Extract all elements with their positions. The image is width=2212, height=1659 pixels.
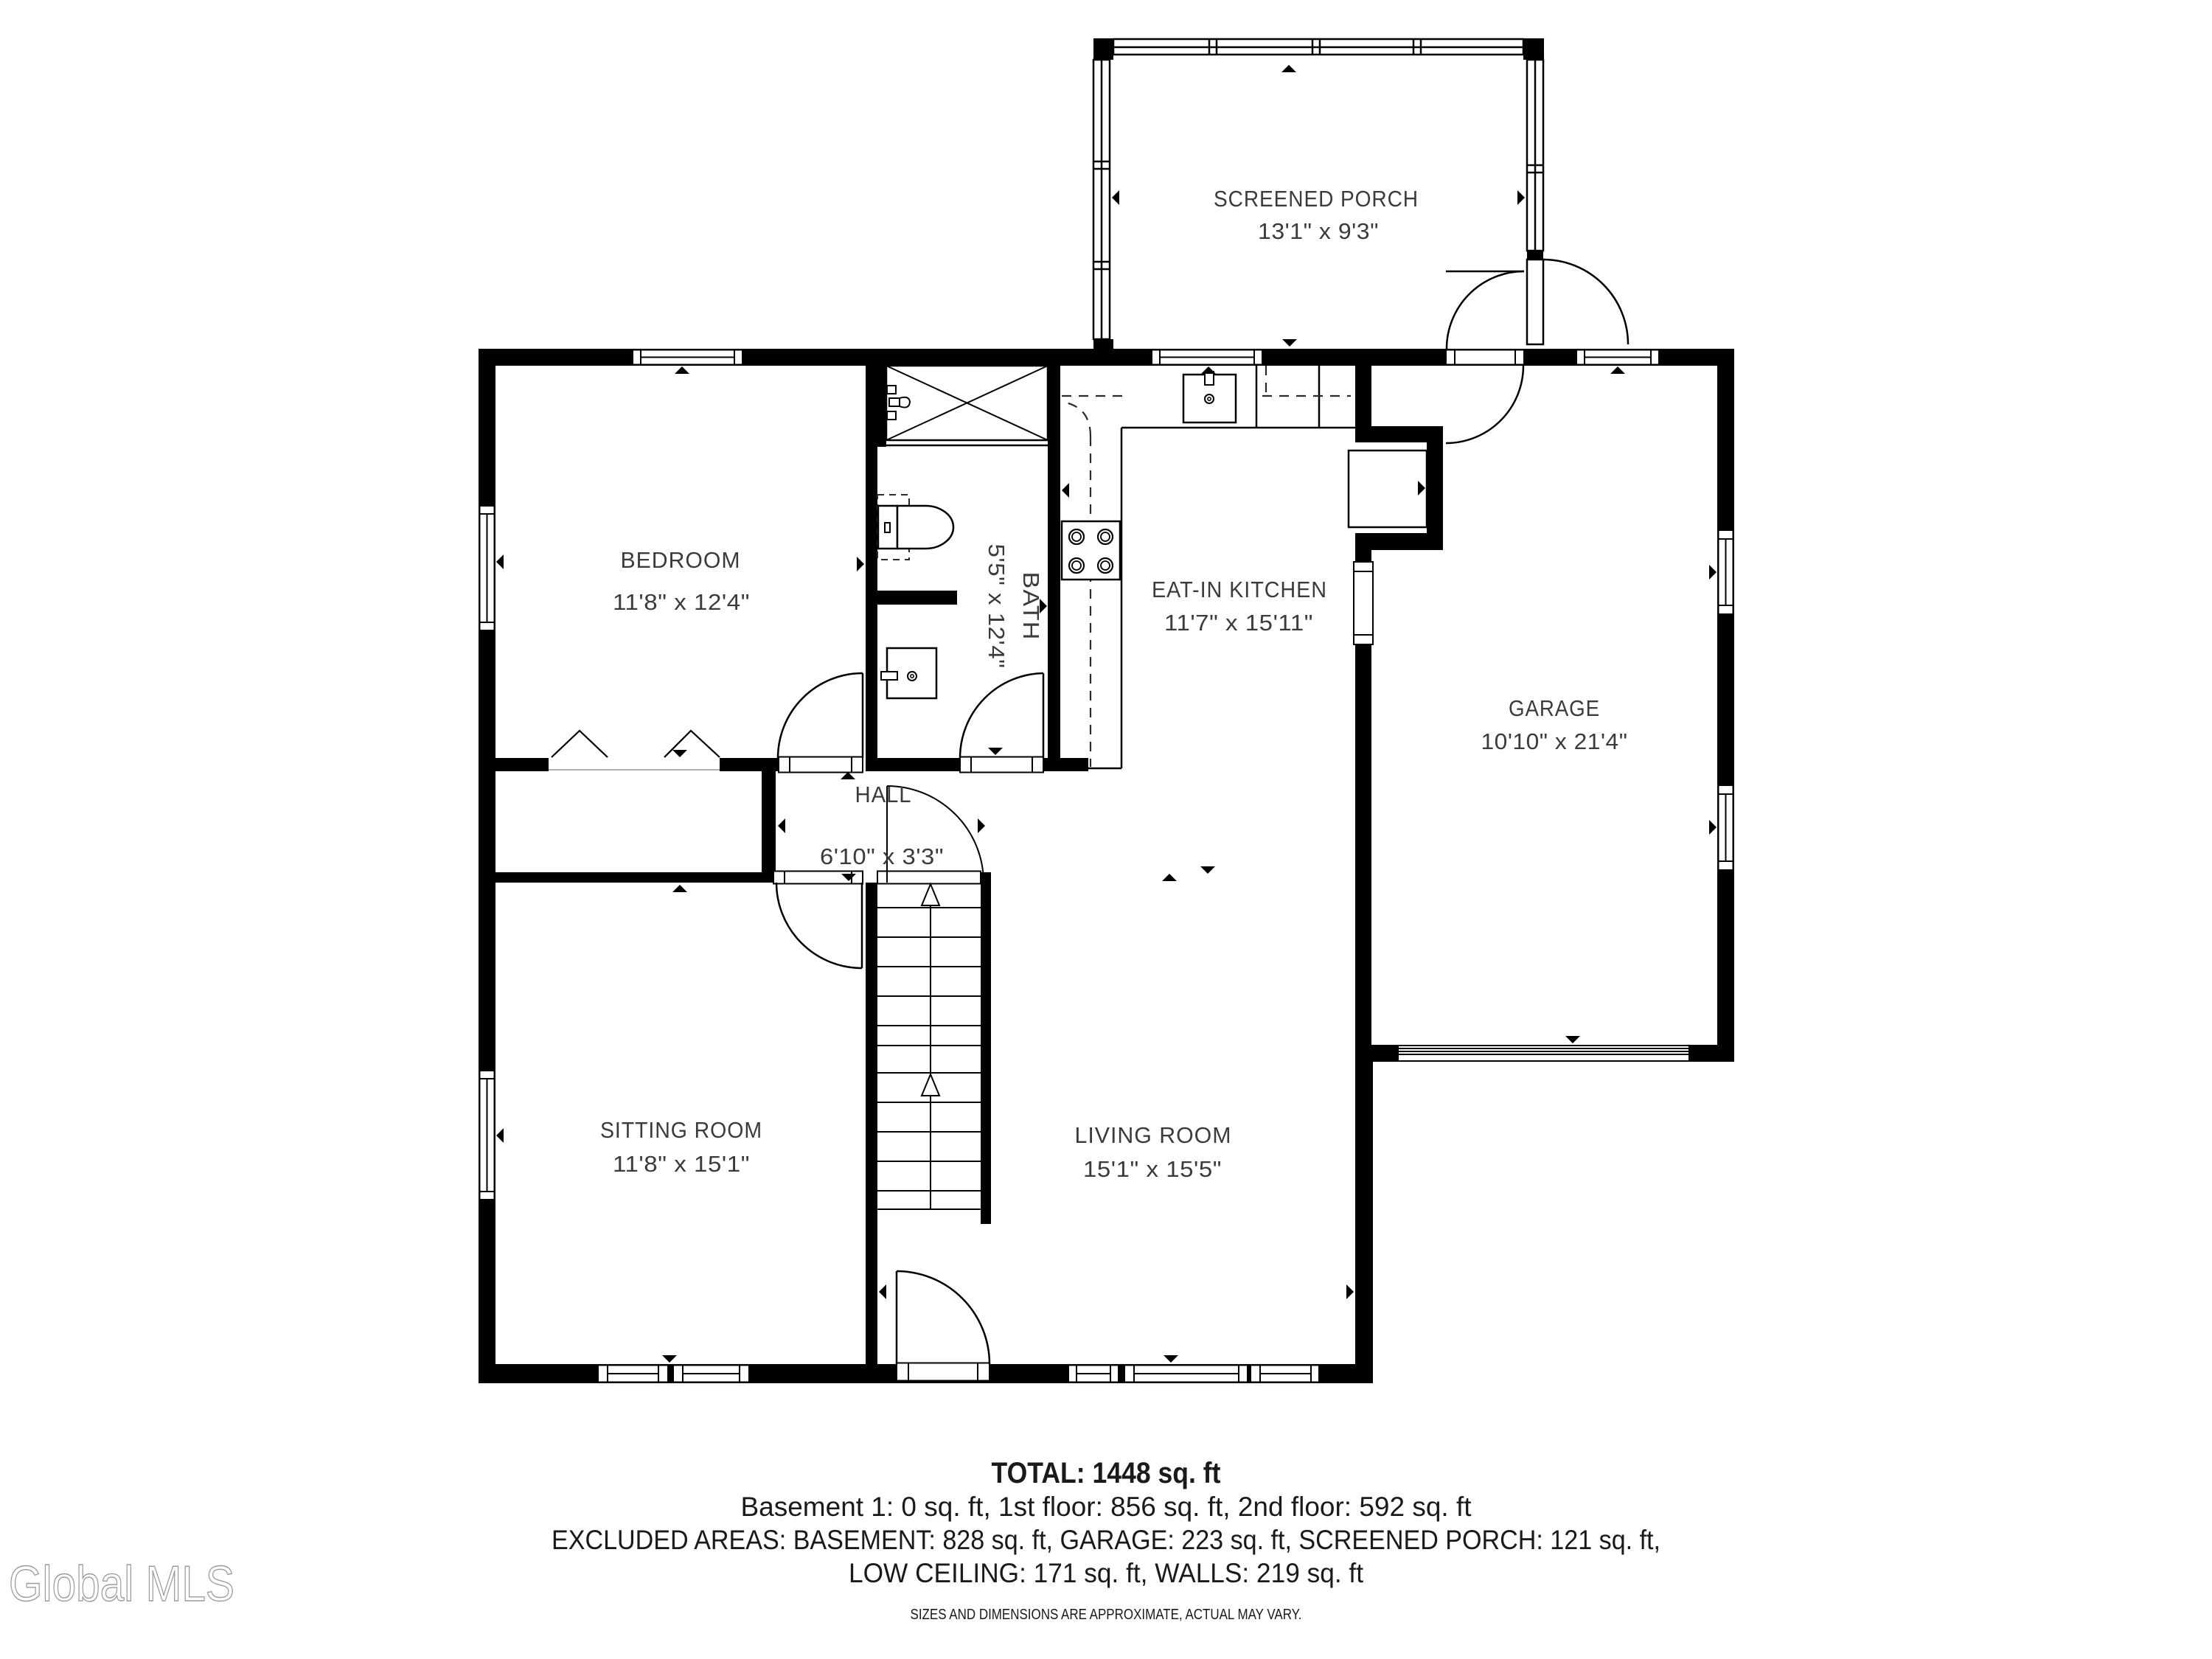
svg-text:10'10" x 21'4": 10'10" x 21'4"	[1481, 728, 1628, 754]
svg-text:SITTING ROOM: SITTING ROOM	[600, 1117, 762, 1143]
svg-text:Global MLS: Global MLS	[9, 1556, 234, 1612]
svg-text:GARAGE: GARAGE	[1509, 695, 1600, 721]
svg-text:BEDROOM: BEDROOM	[621, 547, 741, 573]
svg-text:HALL: HALL	[855, 782, 912, 807]
svg-text:EXCLUDED AREAS: BASEMENT: 828: EXCLUDED AREAS: BASEMENT: 828 sq. ft, GA…	[552, 1525, 1660, 1555]
svg-text:5'5" x 12'4": 5'5" x 12'4"	[984, 544, 1009, 669]
svg-text:LOW CEILING: 171 sq. ft, WALLS: LOW CEILING: 171 sq. ft, WALLS: 219 sq. …	[849, 1558, 1364, 1588]
svg-text:SIZES AND DIMENSIONS ARE APPRO: SIZES AND DIMENSIONS ARE APPROXIMATE, AC…	[911, 1607, 1302, 1623]
svg-text:15'1" x 15'5": 15'1" x 15'5"	[1083, 1156, 1222, 1182]
svg-text:13'1" x 9'3": 13'1" x 9'3"	[1258, 218, 1379, 244]
svg-text:LIVING ROOM: LIVING ROOM	[1075, 1122, 1232, 1148]
svg-text:11'8" x 15'1": 11'8" x 15'1"	[613, 1151, 750, 1177]
svg-text:11'7" x 15'11": 11'7" x 15'11"	[1164, 610, 1313, 636]
svg-text:Basement 1: 0 sq. ft, 1st floo: Basement 1: 0 sq. ft, 1st floor: 856 sq.…	[741, 1492, 1472, 1522]
svg-text:TOTAL: 1448 sq. ft: TOTAL: 1448 sq. ft	[992, 1457, 1221, 1489]
svg-text:EAT-IN KITCHEN: EAT-IN KITCHEN	[1152, 577, 1327, 602]
svg-text:11'8" x 12'4": 11'8" x 12'4"	[613, 589, 750, 615]
svg-text:6'10" x 3'3": 6'10" x 3'3"	[820, 844, 944, 869]
svg-text:BATH: BATH	[1018, 572, 1044, 641]
svg-text:SCREENED PORCH: SCREENED PORCH	[1214, 186, 1419, 212]
